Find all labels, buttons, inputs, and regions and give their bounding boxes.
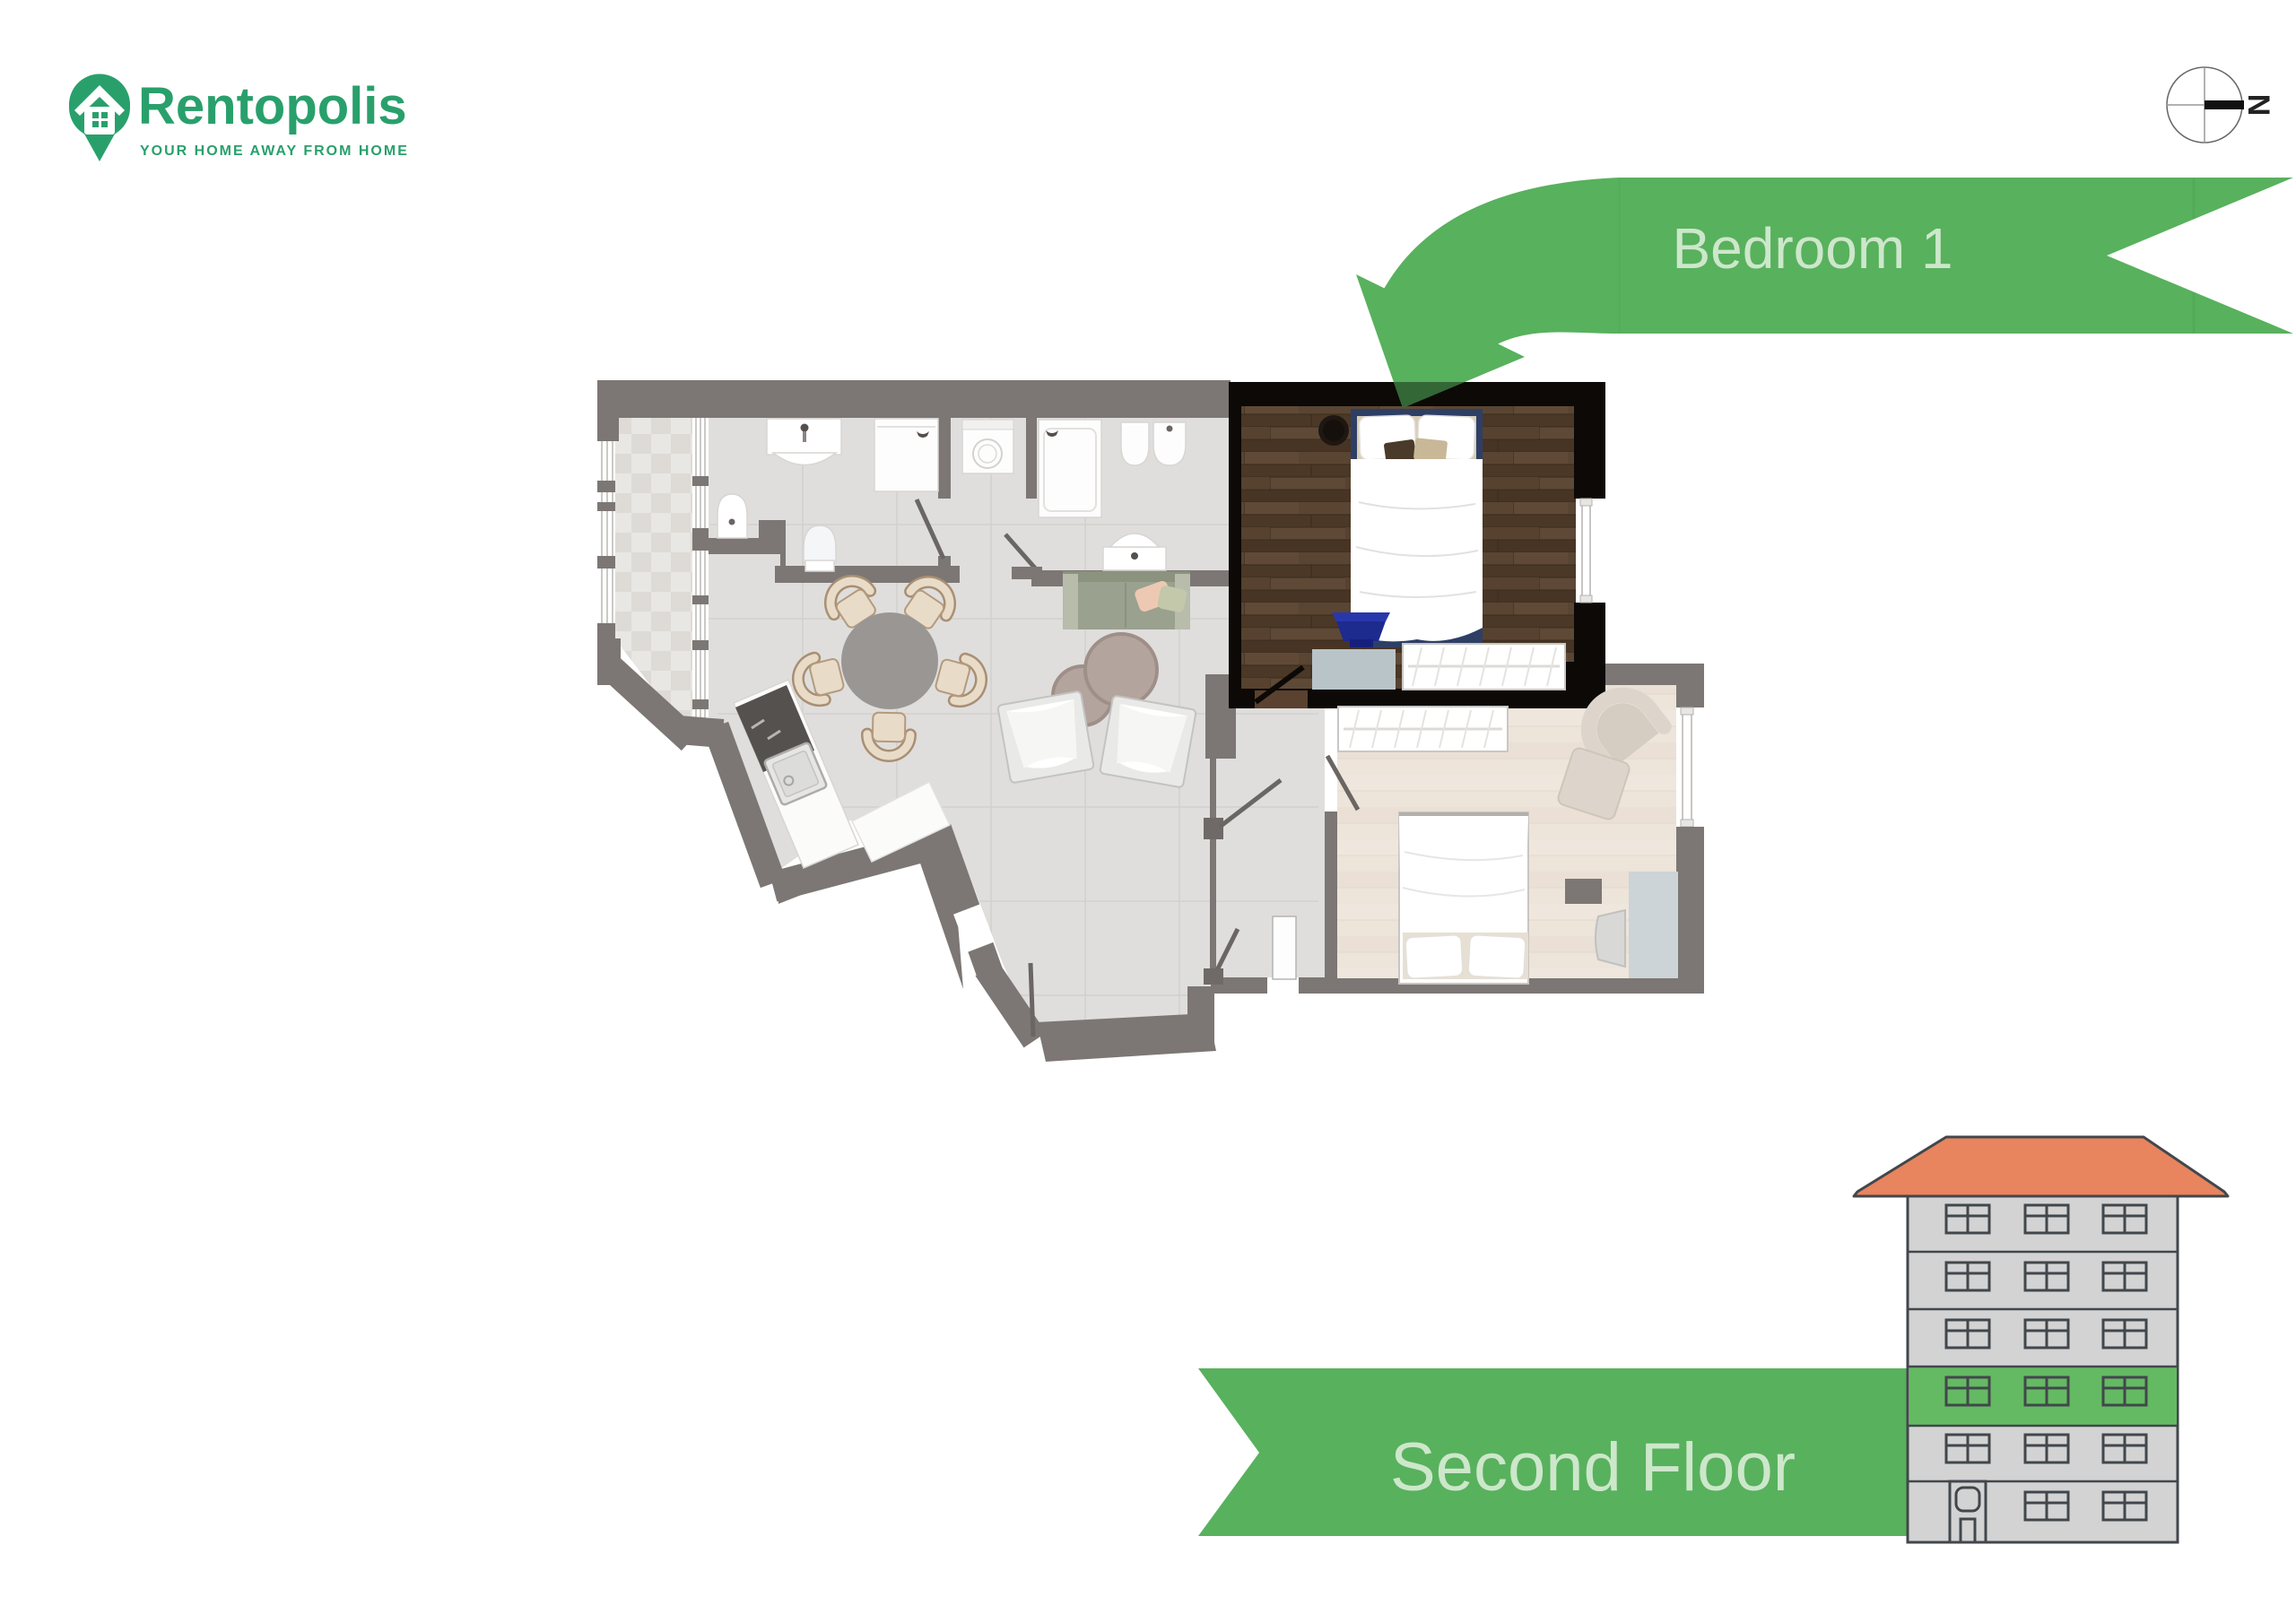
svg-text:Bedroom 1: Bedroom 1 [1672,216,1952,281]
svg-text:Rentopolis: Rentopolis [138,77,407,135]
svg-text:Second Floor: Second Floor [1390,1429,1796,1506]
svg-text:YOUR HOME AWAY FROM HOME: YOUR HOME AWAY FROM HOME [140,143,409,159]
svg-text:N: N [2241,94,2275,117]
